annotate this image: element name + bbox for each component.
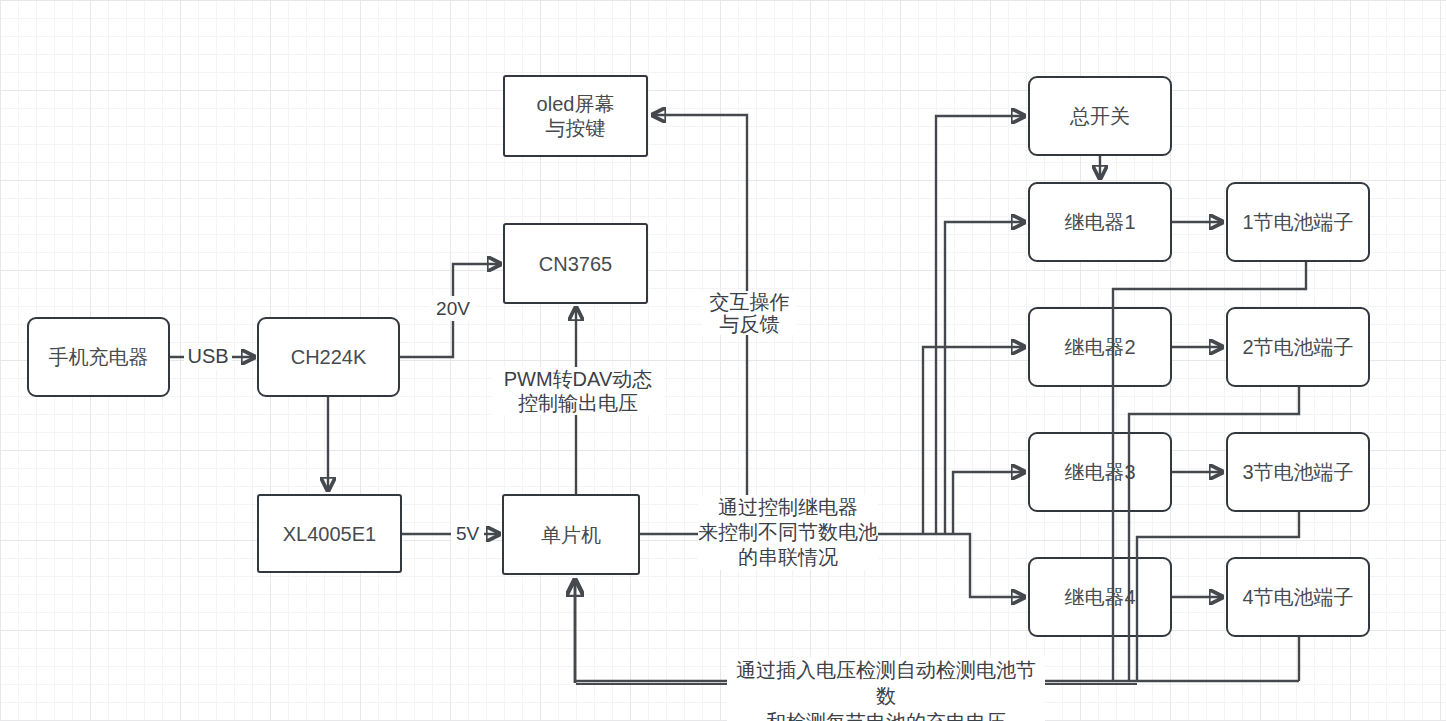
- node-mcu: 单片机: [502, 494, 640, 575]
- wire-branch-to-relay3: [953, 472, 1024, 534]
- node-xl4005e1: XL4005E1: [257, 494, 402, 573]
- node-ch224k: CH224K: [257, 317, 400, 397]
- node-terminal3-label: 3节电池端子: [1242, 460, 1353, 484]
- label-voltage-detection: 通过插入电压检测自动检测电池节数 和检测每节电池的充电电压: [727, 657, 1045, 721]
- node-mcu-label: 单片机: [541, 523, 601, 547]
- node-terminal4-label: 4节电池端子: [1242, 585, 1353, 609]
- node-ch224k-label: CH224K: [291, 345, 367, 369]
- label-pwm-dav: PWM转DAV动态 控制输出电压: [492, 367, 664, 415]
- node-phone-charger-label: 手机充电器: [49, 345, 149, 369]
- node-relay3: 继电器3: [1028, 432, 1172, 512]
- label-interaction-feedback: 交互操作 与反馈: [702, 291, 797, 335]
- node-relay1-label: 继电器1: [1064, 210, 1135, 234]
- label-usb: USB: [184, 343, 232, 370]
- node-relay3-label: 继电器3: [1064, 460, 1135, 484]
- diagram-canvas: 手机充电器 CH224K XL4005E1 CN3765 oled屏幕 与按键 …: [0, 0, 1446, 721]
- node-terminal3: 3节电池端子: [1226, 432, 1370, 512]
- wire-branch-to-main-switch: [936, 116, 1024, 534]
- node-relay2: 继电器2: [1028, 307, 1172, 387]
- node-oled-screen-buttons-label: oled屏幕 与按键: [537, 92, 615, 140]
- node-oled-screen-buttons: oled屏幕 与按键: [503, 75, 648, 157]
- node-relay2-label: 继电器2: [1064, 335, 1135, 359]
- label-20v: 20V: [430, 296, 476, 321]
- node-terminal1: 1节电池端子: [1226, 182, 1370, 262]
- wire-branch-to-relay2: [923, 347, 1024, 534]
- node-relay1: 继电器1: [1028, 182, 1172, 262]
- node-terminal1-label: 1节电池端子: [1242, 210, 1353, 234]
- node-xl4005e1-label: XL4005E1: [283, 522, 376, 546]
- node-cn3765-label: CN3765: [539, 252, 612, 276]
- node-relay4: 继电器4: [1028, 557, 1172, 637]
- node-phone-charger: 手机充电器: [27, 317, 170, 397]
- node-terminal2: 2节电池端子: [1226, 307, 1370, 387]
- label-5v: 5V: [451, 520, 484, 547]
- node-main-switch: 总开关: [1028, 76, 1172, 156]
- node-cn3765: CN3765: [503, 223, 648, 304]
- node-main-switch-label: 总开关: [1070, 104, 1130, 128]
- node-terminal4: 4节电池端子: [1226, 557, 1370, 637]
- node-relay4-label: 继电器4: [1064, 585, 1135, 609]
- node-terminal2-label: 2节电池端子: [1242, 335, 1353, 359]
- label-relay-control: 通过控制继电器 来控制不同节数电池 的串联情况: [698, 495, 878, 570]
- wire-branch-to-relay1: [945, 222, 1024, 534]
